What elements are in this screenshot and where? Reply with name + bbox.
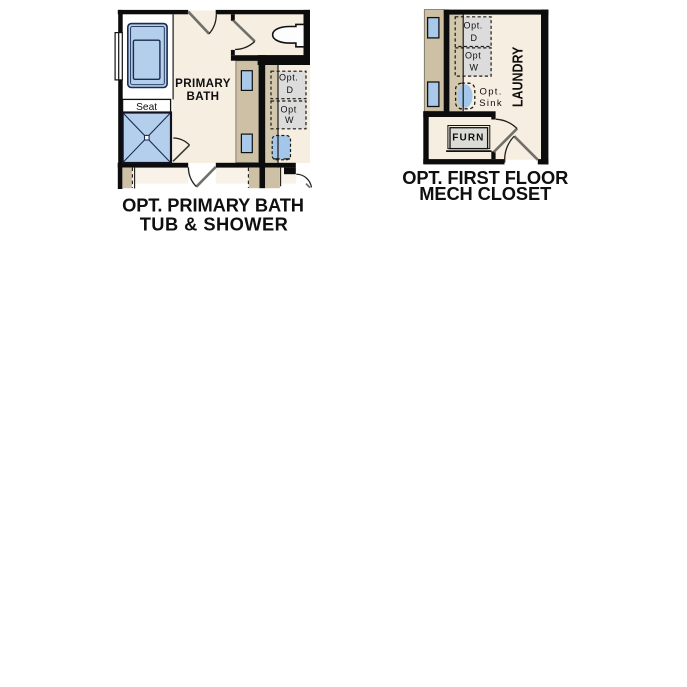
svg-text:FURN: FURN [452,133,484,144]
svg-text:Opt.: Opt. [279,73,298,83]
svg-text:TUB & SHOWER: TUB & SHOWER [140,213,289,234]
svg-text:MECH CLOSET: MECH CLOSET [419,183,551,204]
svg-text:Opt.: Opt. [463,20,482,30]
svg-text:Sink: Sink [479,98,503,109]
svg-text:Opt: Opt [281,104,297,114]
svg-text:Opt: Opt [465,51,481,61]
svg-text:W: W [285,115,294,125]
svg-text:Opt.: Opt. [480,87,503,98]
svg-text:BATH: BATH [187,90,220,103]
svg-text:D: D [470,33,477,43]
svg-text:PRIMARY: PRIMARY [175,77,231,90]
svg-text:D: D [286,85,293,95]
svg-text:LAUNDRY: LAUNDRY [510,47,526,108]
svg-text:W: W [469,62,478,72]
